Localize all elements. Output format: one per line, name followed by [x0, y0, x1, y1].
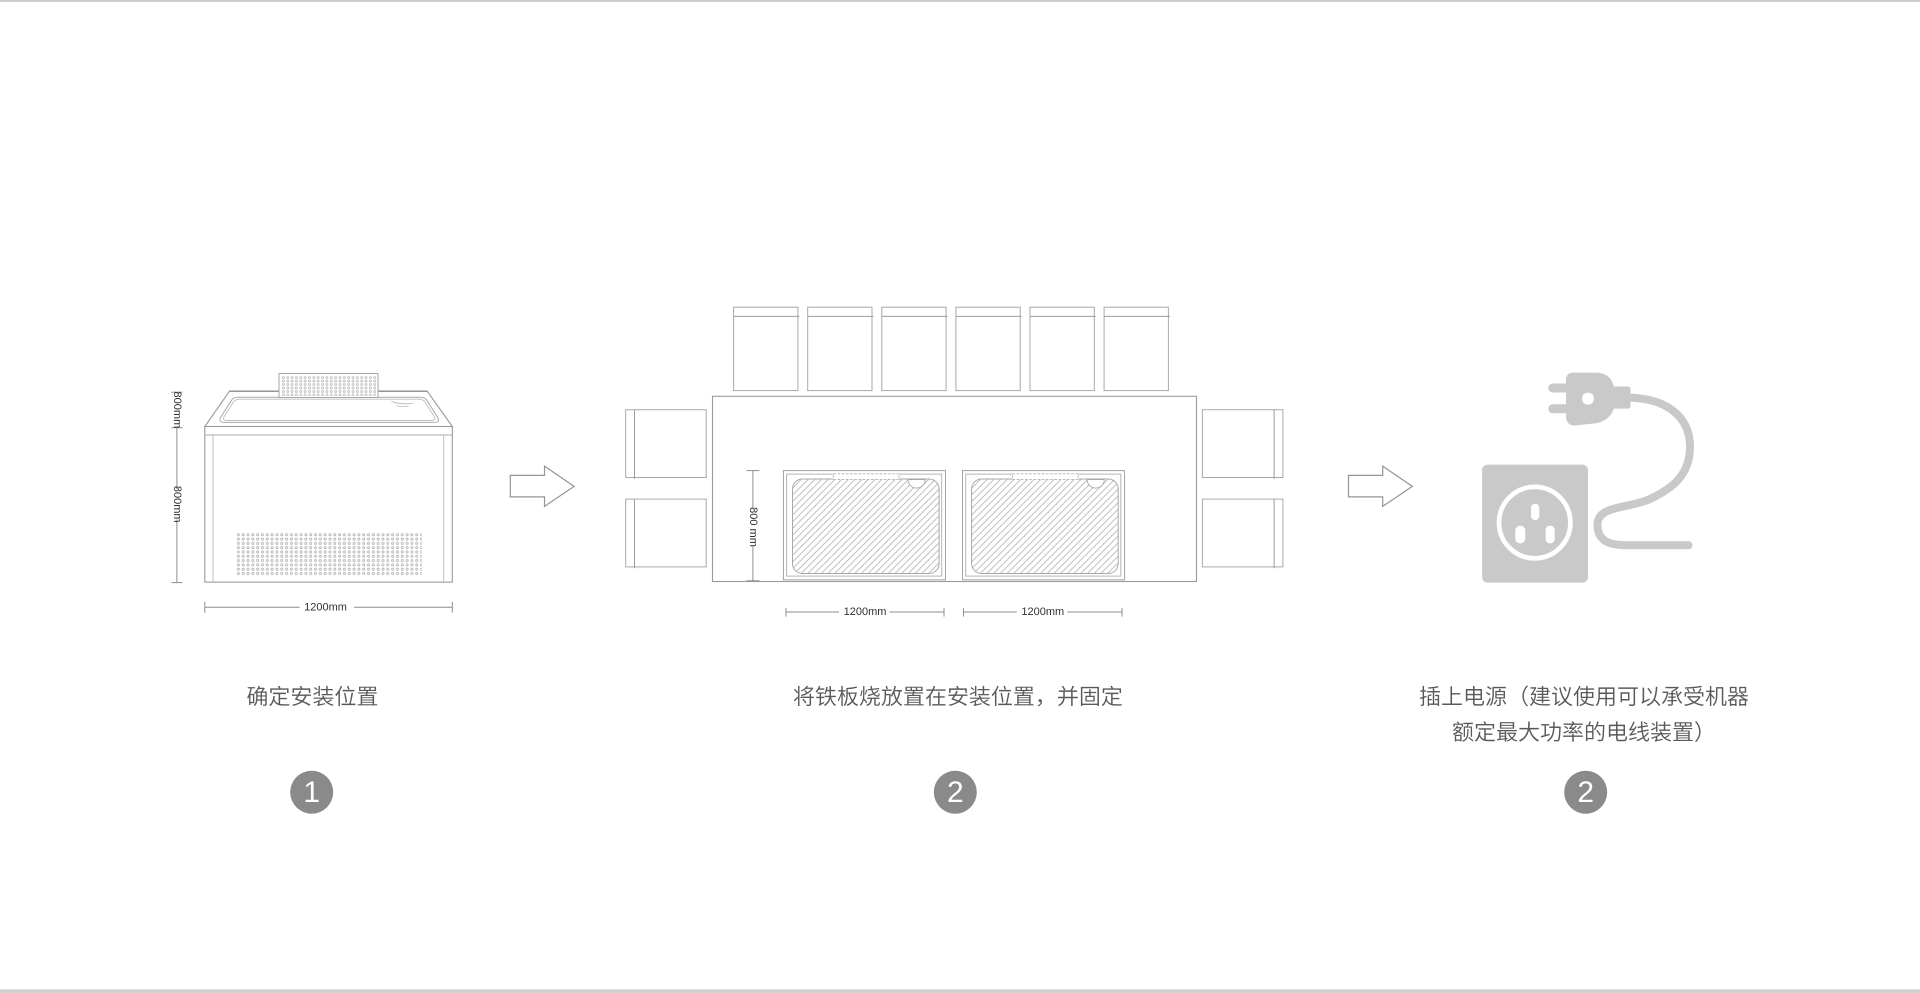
svg-text:800mm: 800mm	[171, 392, 183, 429]
svg-text:1200mm: 1200mm	[1021, 606, 1064, 618]
svg-text:800mm: 800mm	[171, 486, 183, 523]
svg-text:2: 2	[1577, 776, 1594, 809]
svg-text:800 mm: 800 mm	[747, 507, 759, 547]
svg-text:2: 2	[947, 776, 964, 809]
svg-text:1: 1	[303, 776, 320, 809]
svg-text:1200mm: 1200mm	[304, 601, 347, 613]
svg-text:1200mm: 1200mm	[844, 606, 887, 618]
